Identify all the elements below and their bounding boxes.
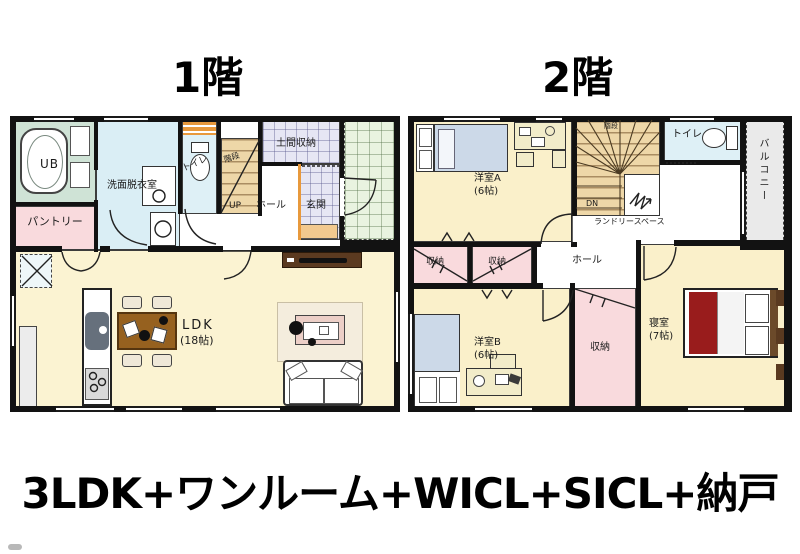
washroom-label: 洗面脱衣室 (107, 180, 157, 191)
window (688, 406, 744, 412)
up-label: UP (229, 202, 241, 212)
balcony-label: バルコニー (757, 138, 768, 203)
table-item (159, 316, 168, 325)
wall-segment (408, 283, 543, 289)
wall-segment (660, 116, 664, 164)
headboard-shelf (419, 128, 432, 147)
chair (152, 296, 172, 309)
floor2-plan: 洋室A (6帖) 階段 DN ランドリースペース トイレ バルコニー 収納 収納… (408, 116, 792, 412)
entrance-porch (344, 120, 396, 240)
laundry-label: ランドリースペース (594, 218, 665, 227)
wall-segment (572, 116, 577, 216)
wall-segment (571, 242, 577, 247)
headboard-shelf (419, 150, 432, 169)
wall-segment (94, 200, 98, 252)
wall-segment (94, 116, 98, 170)
wall-segment (262, 162, 302, 166)
bath-counter (70, 126, 90, 156)
wall-segment (251, 246, 400, 252)
desk-monitor (495, 374, 509, 385)
placemat (150, 326, 167, 343)
pillow (745, 294, 769, 323)
bed-b (414, 314, 460, 406)
plant-small (308, 338, 316, 346)
desk-a-return (552, 150, 566, 168)
wall-segment (532, 242, 537, 288)
desk-item (519, 127, 531, 136)
wall-segment (394, 116, 400, 412)
room-b-size-label: (6帖) (474, 350, 498, 361)
bed-b-panel (439, 377, 457, 403)
desk-chair-mark (473, 375, 485, 387)
pillow (745, 326, 769, 355)
window (740, 172, 746, 234)
sofa-cushion (289, 378, 324, 404)
window (10, 296, 16, 346)
desk-a (514, 122, 566, 150)
wall-segment (148, 246, 223, 252)
chair (152, 354, 172, 367)
closet-left-label: 収納 (426, 258, 444, 268)
pantry-label: パントリー (18, 216, 92, 228)
dn-label: DN (586, 200, 598, 209)
washing-machine (150, 212, 176, 246)
bed-b-panel (419, 377, 437, 403)
floor1-title: 1階 (172, 44, 243, 105)
window (56, 406, 114, 412)
wall-segment (674, 240, 786, 246)
window (475, 406, 532, 412)
window-shutter (776, 290, 784, 306)
stove (85, 368, 109, 400)
shoe-cabinet (300, 224, 338, 239)
room-b-label: 洋室B (474, 337, 501, 348)
window (394, 292, 400, 362)
window (670, 116, 714, 122)
refrigerator-space (20, 254, 52, 288)
wall-segment (10, 116, 16, 412)
desk-item (508, 373, 521, 384)
window (536, 116, 562, 122)
window (104, 116, 148, 122)
bath-shelf (70, 162, 90, 188)
wall-segment (340, 120, 344, 178)
corner-smudge (8, 544, 22, 550)
wall-segment (408, 242, 541, 247)
hall-door-arc (185, 209, 216, 244)
window (216, 406, 280, 412)
wall-segment (660, 160, 742, 165)
bed-blanket (689, 292, 717, 354)
ldk-size-label: (18帖) (180, 335, 214, 347)
closet-mid-label: 収納 (488, 258, 506, 268)
remote (287, 258, 294, 262)
wall-segment (340, 240, 400, 246)
stairs-label-2f: 階段 (604, 123, 618, 131)
tv-board (282, 252, 362, 268)
room-a-label: 洋室A (474, 173, 501, 184)
floor2-title: 2階 (542, 44, 613, 105)
hall-label-1f: ホール (256, 200, 286, 211)
wall-segment (784, 116, 792, 412)
table-plant (139, 330, 150, 341)
storage-label: 収納 (590, 342, 610, 353)
bedroom-label: 寝室 (649, 318, 669, 329)
placemat (122, 320, 140, 338)
table-item (319, 326, 329, 335)
wall-segment (468, 246, 472, 283)
plant (289, 321, 303, 335)
toilet-shelf (183, 121, 216, 135)
wall-segment (636, 240, 641, 408)
sofa (283, 360, 363, 406)
plan-caption: 3LDK+ワンルーム+WICL+SICL+納戸 (0, 460, 800, 521)
hall-label-2f: ホール (572, 255, 602, 266)
bed-a (434, 124, 508, 172)
desk-lamp (545, 126, 555, 136)
chair (122, 296, 142, 309)
dining-table (117, 312, 177, 350)
bed-sheet (717, 292, 744, 354)
window (126, 406, 182, 412)
faucet (99, 326, 107, 334)
bedroom-size-label: (7帖) (649, 331, 673, 342)
window-shutter (776, 328, 784, 344)
sofa-cushion (324, 378, 359, 404)
wall-segment (14, 202, 96, 206)
room-a-size-label: (6帖) (474, 186, 498, 197)
wall-segment (217, 116, 221, 214)
window (444, 116, 500, 122)
cupboard (19, 326, 37, 408)
doma-storage-label: 土間収納 (276, 138, 316, 149)
toilet-bowl-2f (702, 128, 726, 148)
toilet-label-2f: トイレ (672, 129, 702, 140)
entrance-frame (298, 164, 301, 240)
desk-monitor (531, 137, 545, 147)
entrance-label: 玄関 (306, 200, 326, 211)
bath-label: UB (40, 158, 59, 171)
floor1-plan: UB 洗面脱衣室 パントリー トイレ 階段 UP 土間収納 ホール 玄関 LDK… (10, 116, 400, 412)
desk-a-chair (516, 152, 534, 167)
double-bed (683, 288, 778, 358)
tv (299, 258, 347, 263)
wall-segment (570, 283, 575, 408)
window (408, 314, 414, 394)
toilet-tank-1f (191, 142, 209, 153)
desk-b (466, 368, 522, 396)
wall-segment (10, 246, 62, 252)
toilet-tank-2f (726, 126, 738, 150)
floorplan-canvas: 1階 2階 (0, 0, 800, 554)
chair (122, 354, 142, 367)
window (34, 116, 74, 122)
bed-a-headboard (416, 124, 434, 172)
bed-a-pillow (438, 129, 455, 169)
wall-segment (100, 246, 110, 252)
stairs-landing (624, 174, 660, 216)
window-shutter (776, 364, 784, 380)
kitchen-sink (85, 312, 109, 350)
ldk-label: LDK (182, 319, 214, 333)
